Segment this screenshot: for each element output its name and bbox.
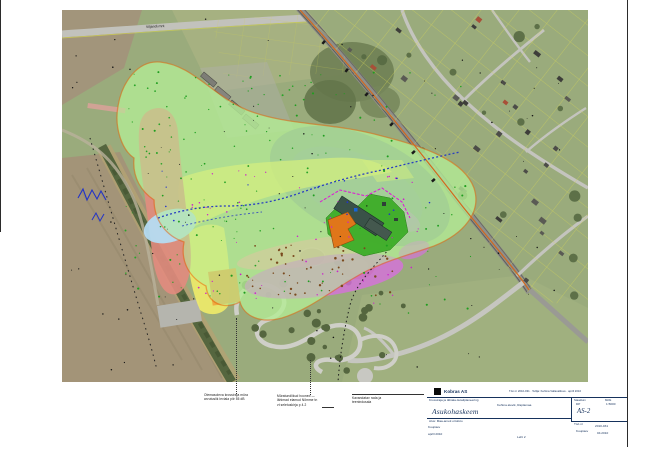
date-value: aprill 2010 <box>428 433 442 437</box>
company-logo <box>434 388 441 395</box>
sheet-number: Leht 2 <box>517 436 526 440</box>
drawing-number: AS-2 <box>577 408 590 415</box>
tbdate-value: 04.2010 <box>597 432 608 436</box>
titleblock-divider <box>571 397 572 421</box>
leader-line-a <box>236 318 237 394</box>
facility-blue-marker <box>354 208 358 212</box>
note-c-tick <box>322 407 334 408</box>
base-map-line: Alus: Maa-ameti ortofoto <box>429 420 539 424</box>
tbdate-label: Kuupäev <box>576 430 588 434</box>
stage-value: DP <box>576 403 580 407</box>
note-c-line2: teenindusala <box>352 400 424 404</box>
note-a-line2: arvutuslik leviala piir 55 dB <box>204 397 268 401</box>
leader-line-b <box>310 360 311 395</box>
scale-value: 1:5000 <box>606 403 615 407</box>
map-note-b: Müratundlikud hooned — lähimad elamud Nõ… <box>277 394 335 407</box>
page-edge-left <box>0 0 1 232</box>
title-block: Kobras AS Töö nr 2010-031 · Tellija: Keh… <box>427 383 627 447</box>
map-note-c: Kavandatav rada ja teenindusala <box>352 394 424 405</box>
project-location: Kehtna alevik, Raplamaa <box>497 404 569 408</box>
map-canvas: Viljandi mnt <box>62 10 588 382</box>
drawing-title: Asukohaskeem <box>432 407 479 416</box>
titleblock-header-right: Töö nr 2010-031 · Tellija: Kehtna Vallav… <box>509 390 623 393</box>
worknr-label: Töö nr <box>574 423 583 427</box>
date-label: Kuupäev <box>428 426 440 430</box>
map-note-a: Olemasoleva krossiraja müra arvutuslik l… <box>204 393 268 402</box>
project-name: Krossiraja ja lähiala detailplaneering <box>429 399 517 403</box>
company-name: Kobras AS <box>444 389 467 394</box>
drawing-frame-right <box>627 0 628 447</box>
worknr-value: 2010-031 <box>595 425 608 429</box>
aerial-map: Viljandi mnt <box>62 10 588 382</box>
drawing-sheet: { "map": { "road_label": "Viljandi mnt",… <box>0 0 650 459</box>
